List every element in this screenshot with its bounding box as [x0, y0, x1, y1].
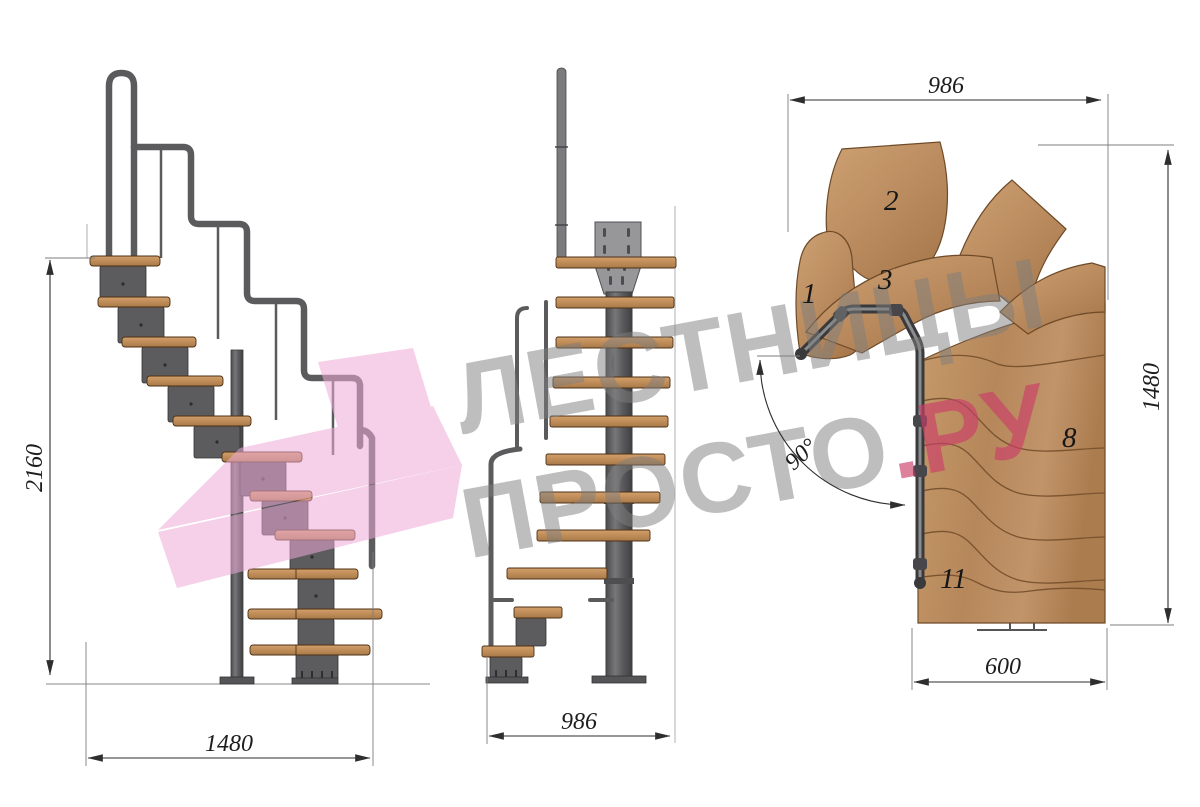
dim-plan-top-width: 986: [928, 73, 964, 99]
plan-step-label-1: 1: [802, 278, 817, 310]
plan-step-label-3: 3: [877, 264, 893, 296]
front-top-post: [557, 68, 566, 262]
plan-column-base-mark: [977, 623, 1047, 630]
plan-step-label-11: 11: [940, 563, 967, 595]
dim-plan-bottom-width: 600: [985, 654, 1021, 680]
dim-front-width: 986: [561, 709, 597, 735]
drawing-svg: ЛЕСТНИЦЫ ПРОСТО.РУ: [0, 0, 1200, 807]
side-module-base: [292, 678, 338, 684]
plan-step-label-2: 2: [884, 185, 899, 217]
dim-side-length: 1480: [205, 731, 253, 757]
staircase-drawing-canvas: ЛЕСТНИЦЫ ПРОСТО.РУ: [0, 0, 1200, 807]
front-column-base: [592, 676, 646, 683]
dim-side-height: 2160: [22, 444, 48, 492]
front-module-base: [486, 677, 528, 683]
dim-plan-right-height: 1480: [1139, 363, 1165, 411]
side-pole-base: [220, 677, 254, 684]
plan-step-label-8: 8: [1062, 422, 1077, 454]
